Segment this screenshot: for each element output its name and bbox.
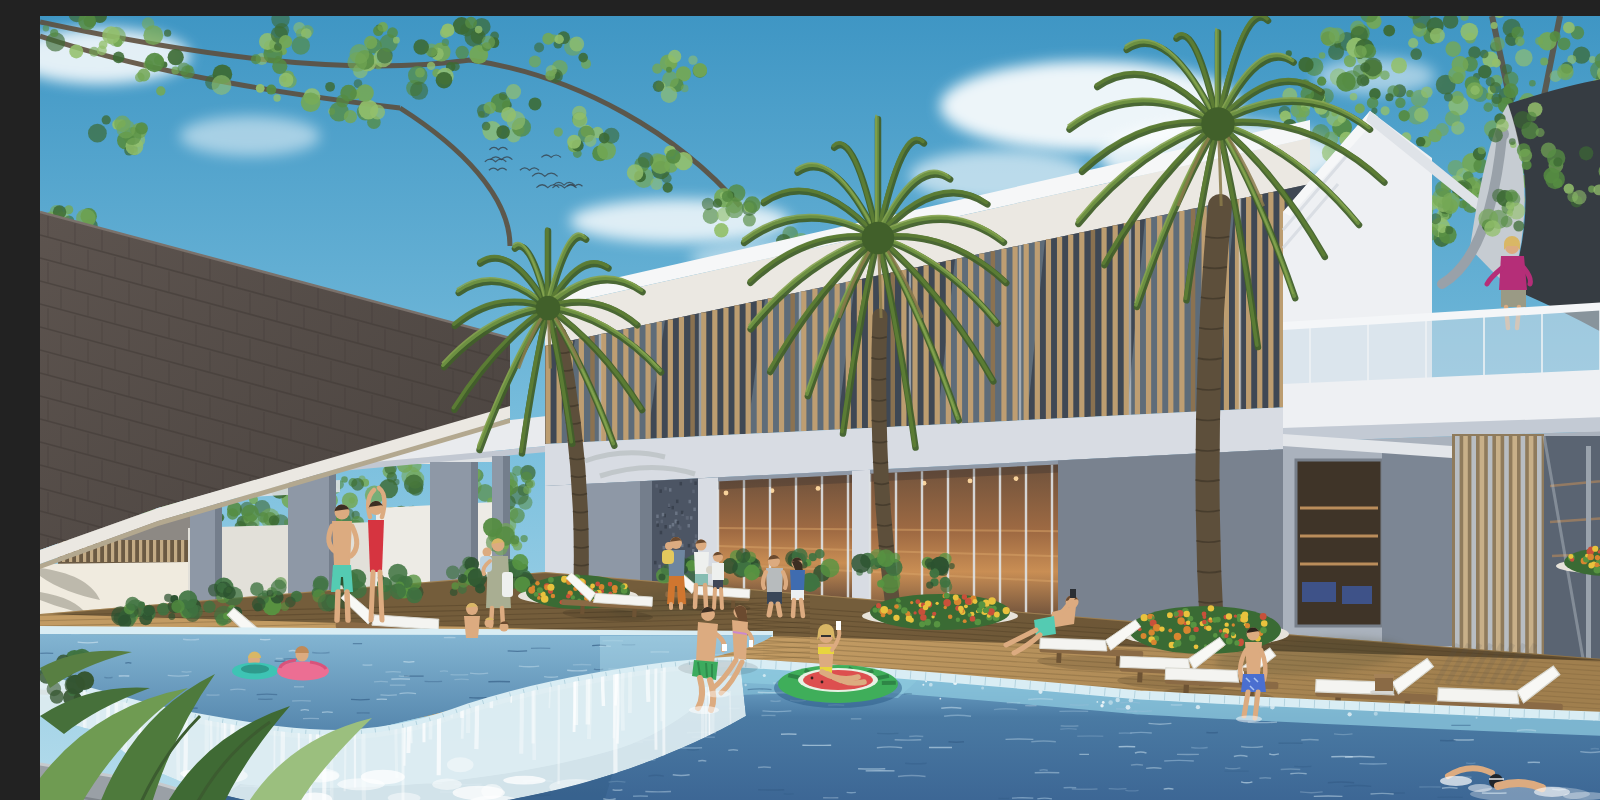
child bbox=[662, 550, 674, 564]
pendant-lamp-icon bbox=[968, 478, 973, 483]
gray-wall bbox=[1382, 446, 1454, 646]
drink-cup bbox=[836, 621, 841, 630]
pendant-lamp-icon bbox=[724, 491, 729, 496]
pier bbox=[852, 470, 870, 602]
towel bbox=[502, 572, 513, 597]
baby bbox=[483, 548, 492, 557]
scene-canvas bbox=[40, 16, 1600, 800]
phone bbox=[1070, 589, 1076, 598]
drink-glass bbox=[749, 640, 753, 647]
cloud bbox=[180, 116, 320, 156]
drink-cup bbox=[722, 644, 727, 651]
resort-rendering: Daytime architectural rendering of a tro… bbox=[40, 16, 1600, 800]
interior-window bbox=[1296, 460, 1382, 626]
pendant-lamp-icon bbox=[1014, 476, 1019, 481]
pendant-lamp-icon bbox=[816, 486, 821, 491]
blue-couch bbox=[1302, 582, 1336, 602]
louver-column bbox=[1452, 434, 1544, 660]
